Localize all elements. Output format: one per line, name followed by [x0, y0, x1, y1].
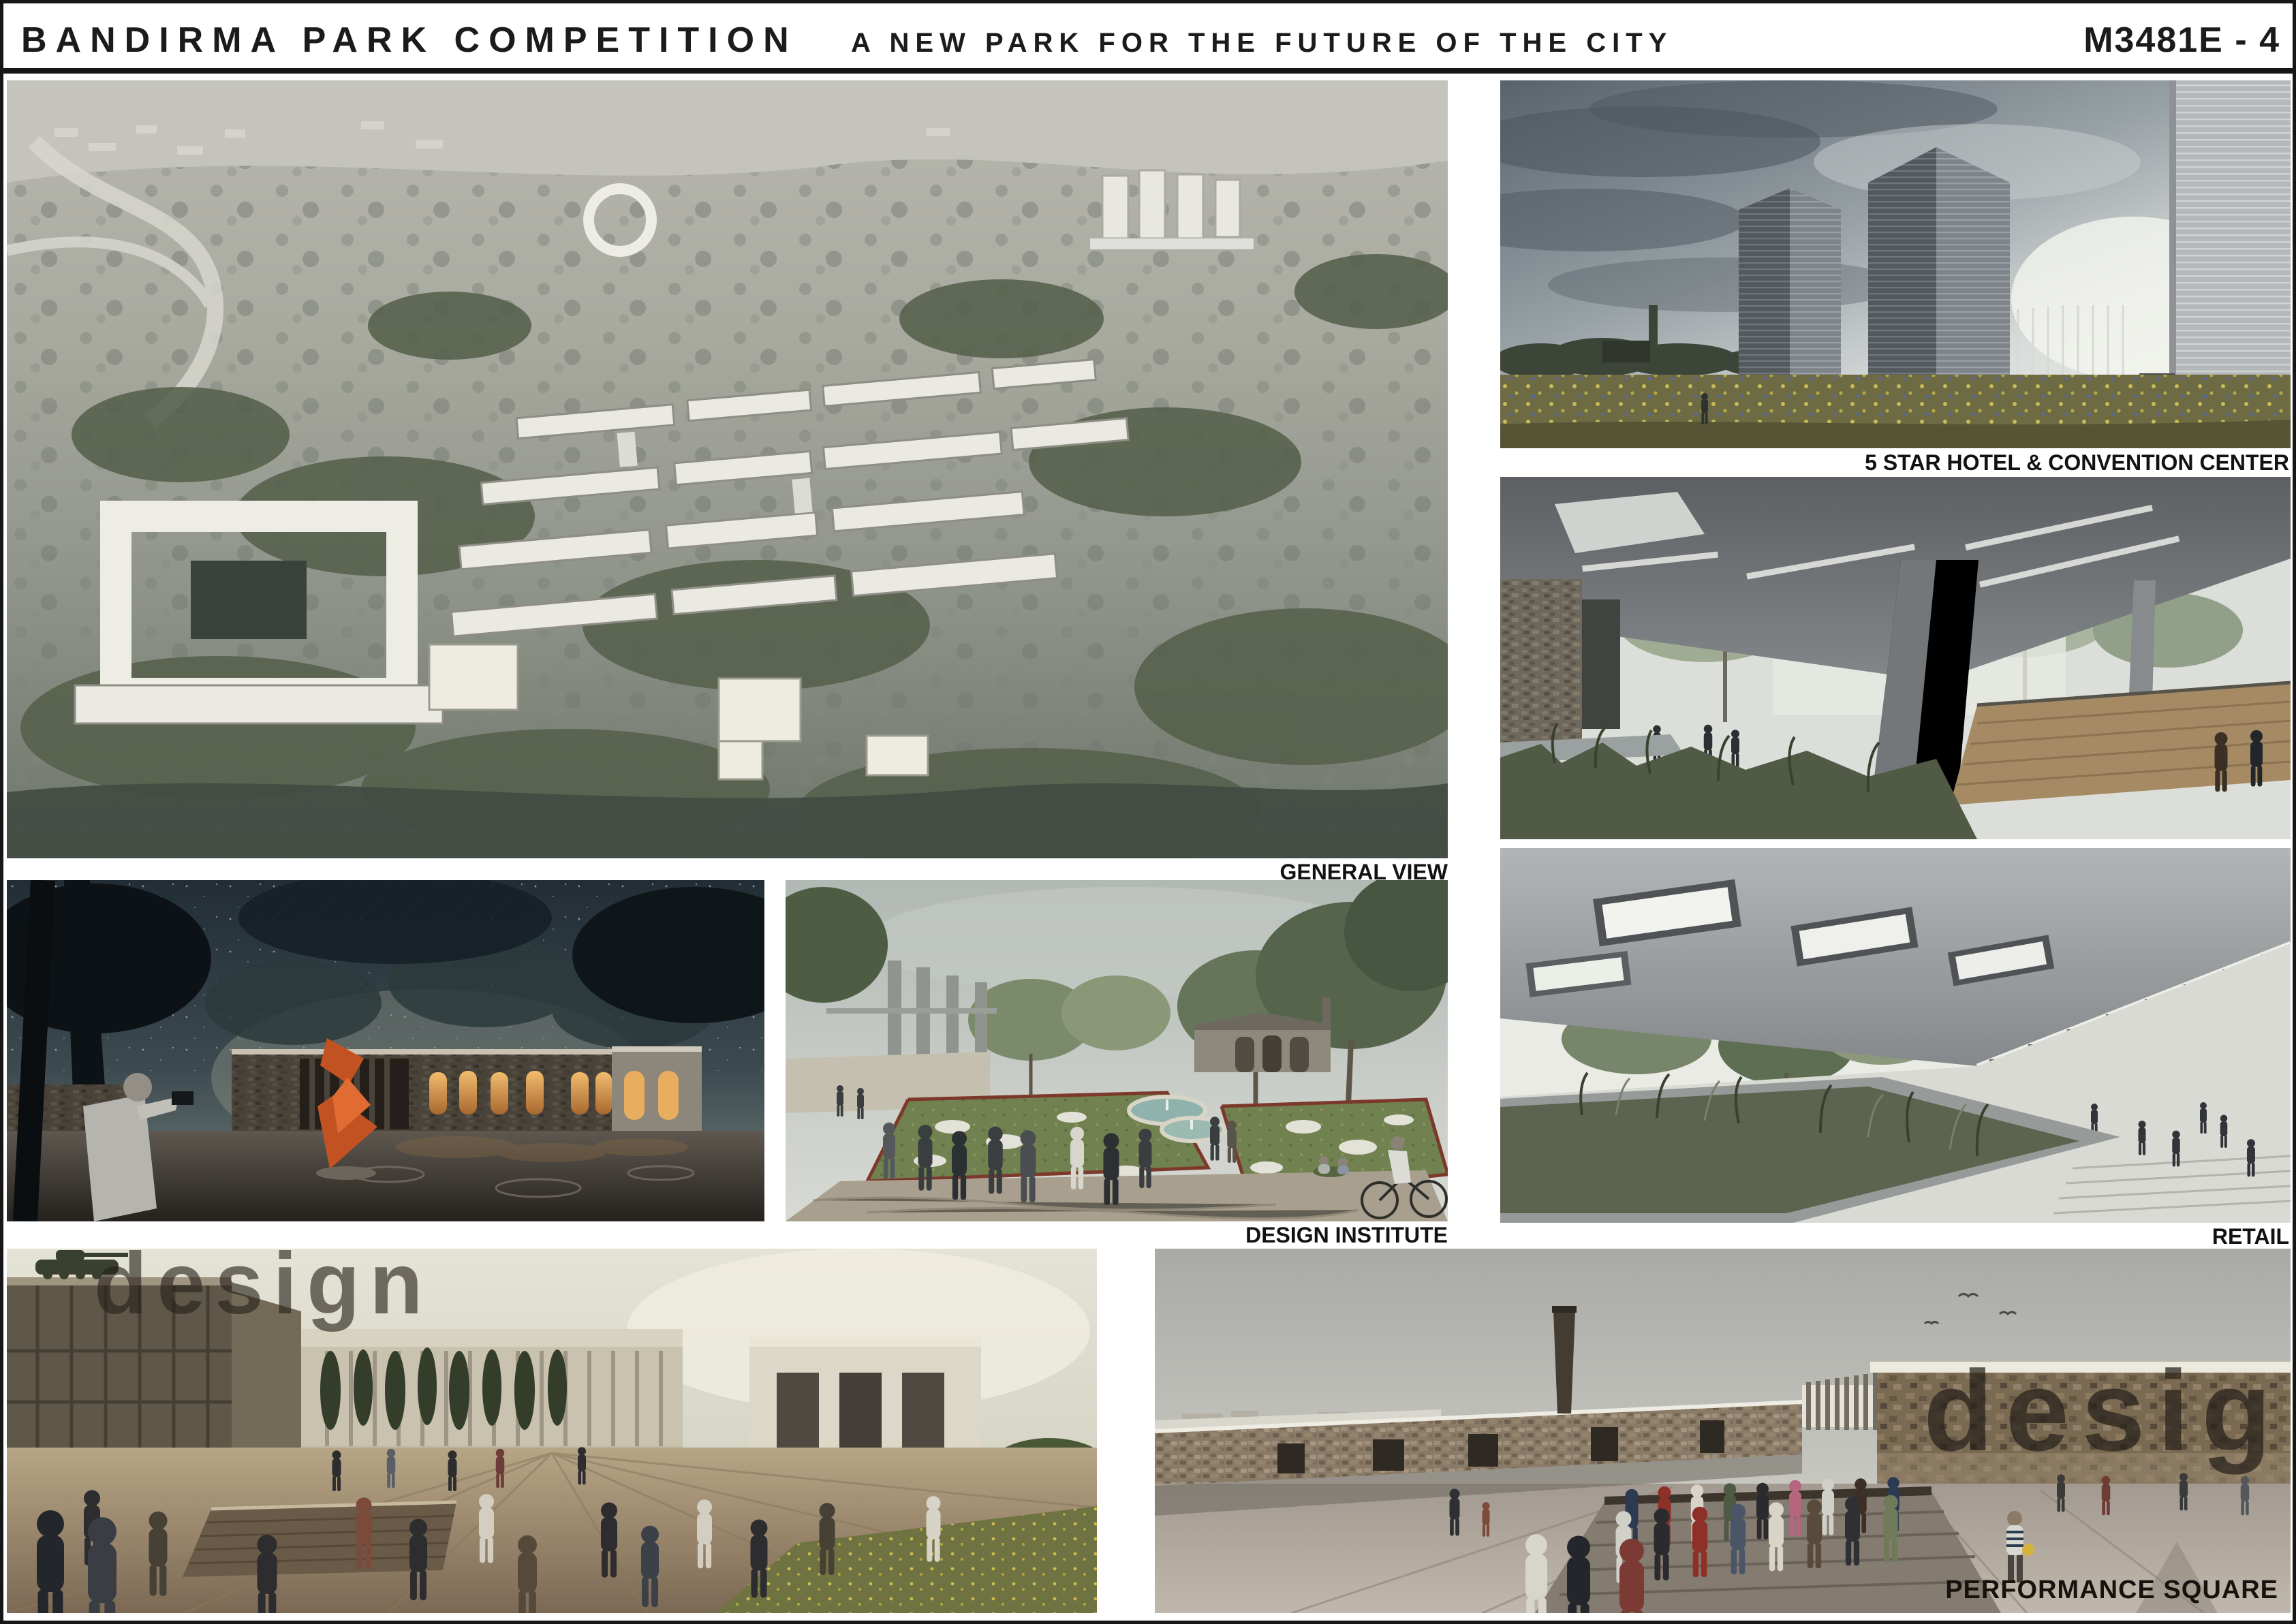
caption-performance-square: PERFORMANCE SQUARE	[1945, 1576, 2278, 1605]
panel-general-view	[7, 80, 1448, 858]
design-institute-render	[786, 880, 1448, 1221]
caption-hotel-convention: 5 STAR HOTEL & CONVENTION CENTER	[1865, 451, 2289, 475]
white-pavilion	[749, 1337, 981, 1467]
shaded-passage	[1582, 599, 1620, 729]
white-volume	[1802, 1385, 1884, 1427]
board-subtitle: A NEW PARK FOR THE FUTURE OF THE CITY	[851, 28, 1673, 59]
panel-design-institute	[786, 880, 1448, 1221]
retail-render	[1500, 848, 2291, 1223]
panel-covered-walkway	[1500, 477, 2291, 839]
performance-square-render	[1155, 1249, 2291, 1613]
walkway-render	[1500, 477, 2291, 839]
foreground-spectators	[1525, 1534, 1644, 1613]
board-title: BANDIRMA PARK COMPETITION	[21, 20, 798, 61]
competition-board: BANDIRMA PARK COMPETITION A NEW PARK FOR…	[0, 0, 2296, 1624]
night-courtyard-render	[7, 880, 764, 1221]
hotel-render	[1500, 80, 2291, 448]
museum-block	[7, 1277, 301, 1448]
design-building	[1870, 1362, 2291, 1487]
entry-code: M3481E - 4	[2083, 20, 2280, 61]
caption-design-institute: DESIGN INSTITUTE	[1245, 1223, 1448, 1247]
panel-performance-square: design PERFORMANCE SQUARE	[1155, 1249, 2291, 1613]
stone-building	[232, 1046, 702, 1131]
caption-retail: RETAIL	[2212, 1225, 2289, 1249]
panel-night-courtyard	[7, 880, 764, 1221]
hotel-tower-short	[1739, 188, 1841, 406]
panel-retail	[1500, 848, 2291, 1223]
general-view-render	[7, 80, 1448, 858]
stone-pier	[1500, 579, 1582, 749]
museum-plaza-render	[7, 1249, 1097, 1613]
panel-museum-plaza: design	[7, 1249, 1097, 1613]
meadow-front	[1500, 420, 2291, 448]
panel-hotel-convention	[1500, 80, 2291, 448]
header-divider	[3, 68, 2293, 74]
